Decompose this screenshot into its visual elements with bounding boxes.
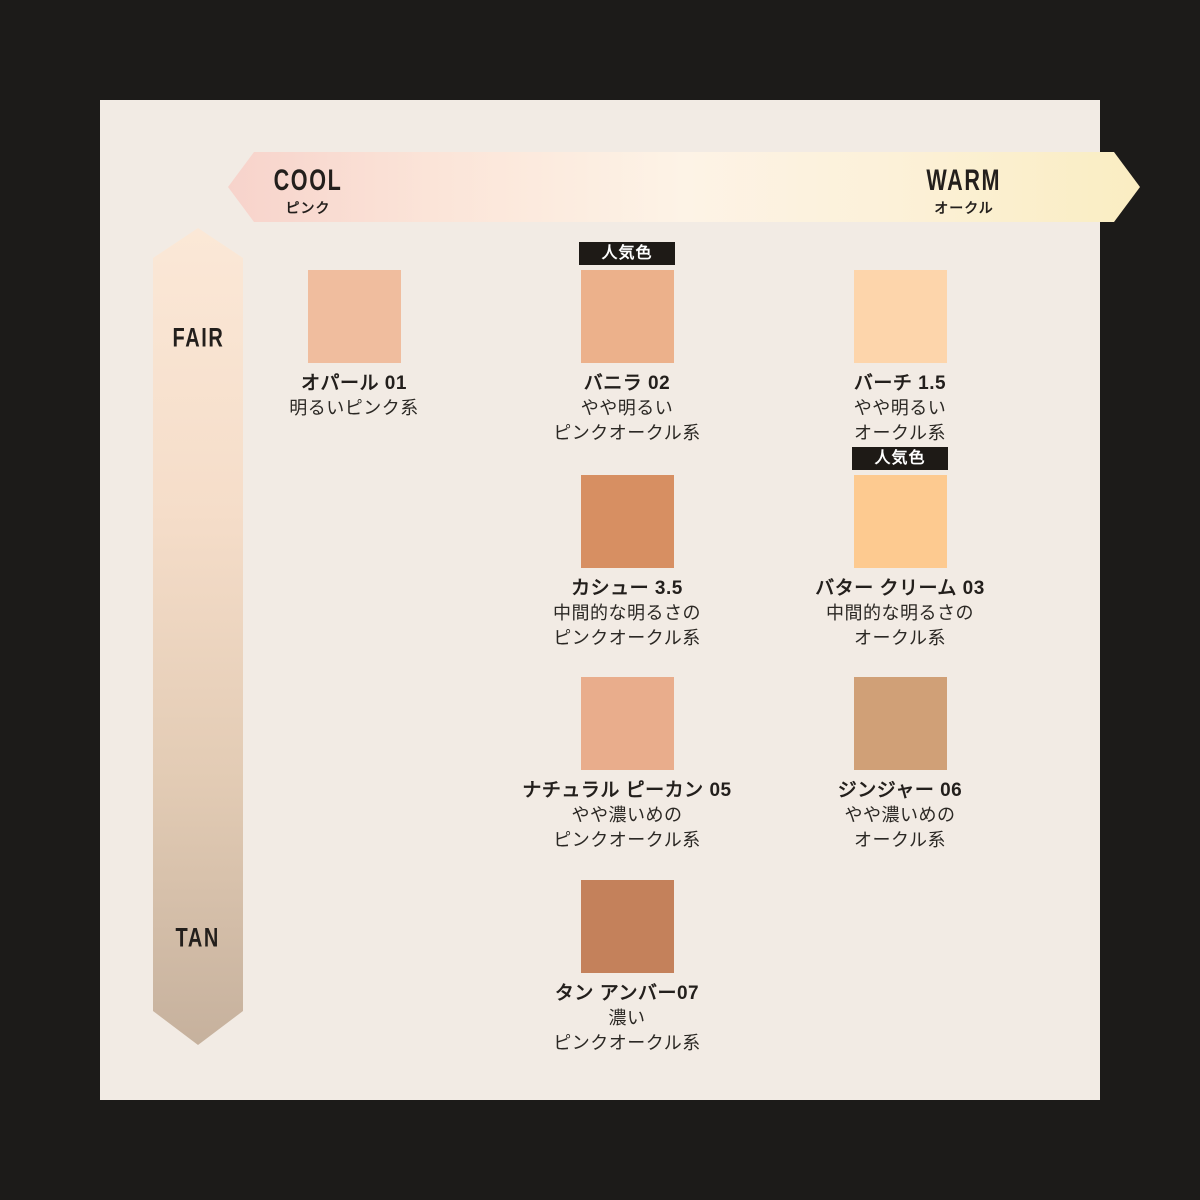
tan-label-text: TAN xyxy=(176,925,220,952)
shade-swatch xyxy=(581,475,674,568)
shade-description-line: やや濃いめの xyxy=(497,803,757,828)
shade-name: オパール 01 xyxy=(224,372,484,396)
shade-name: バター クリーム 03 xyxy=(770,577,1030,601)
shade-description-line: オークル系 xyxy=(770,626,1030,651)
shade-cell: 人気色バニラ 02やや明るいピンクオークル系 xyxy=(497,270,757,446)
shade-swatch xyxy=(581,677,674,770)
shade-description-line: やや明るい xyxy=(497,396,757,421)
shade-description-line: やや濃いめの xyxy=(770,803,1030,828)
shade-cell: 人気色バター クリーム 03中間的な明るさのオークル系 xyxy=(770,475,1030,651)
tan-axis-label: TAN xyxy=(153,926,243,951)
shade-description: やや濃いめのピンクオークル系 xyxy=(497,803,757,853)
cool-label-text: COOL xyxy=(274,166,343,195)
shade-description: 濃いピンクオークル系 xyxy=(497,1006,757,1056)
cool-axis-label: COOL ピンク xyxy=(228,166,388,218)
shade-name: バーチ 1.5 xyxy=(770,372,1030,396)
popular-badge: 人気色 xyxy=(579,242,675,265)
fair-label-text: FAIR xyxy=(172,325,224,352)
shade-cell: オパール 01明るいピンク系 xyxy=(224,270,484,421)
warm-sublabel-text: オークル xyxy=(884,198,1044,218)
shade-description: 中間的な明るさのピンクオークル系 xyxy=(497,601,757,651)
shade-cell: ジンジャー 06やや濃いめのオークル系 xyxy=(770,677,1030,853)
cool-sublabel-text: ピンク xyxy=(228,198,388,218)
shade-cell: バーチ 1.5やや明るいオークル系 xyxy=(770,270,1030,446)
shade-description-line: オークル系 xyxy=(770,828,1030,853)
shade-swatch xyxy=(854,677,947,770)
shade-name: タン アンバー07 xyxy=(497,982,757,1006)
shade-name: ジンジャー 06 xyxy=(770,779,1030,803)
shade-description: 明るいピンク系 xyxy=(224,396,484,421)
shade-swatch xyxy=(581,270,674,363)
warm-axis-label: WARM オークル xyxy=(884,166,1044,218)
shade-description: やや明るいピンクオークル系 xyxy=(497,396,757,446)
shade-description-line: 中間的な明るさの xyxy=(770,601,1030,626)
shade-swatch xyxy=(854,270,947,363)
popular-badge: 人気色 xyxy=(852,447,948,470)
shade-name: ナチュラル ピーカン 05 xyxy=(497,779,757,803)
shade-cell: ナチュラル ピーカン 05やや濃いめのピンクオークル系 xyxy=(497,677,757,853)
shade-swatch xyxy=(581,880,674,973)
shade-description: やや明るいオークル系 xyxy=(770,396,1030,446)
shade-description: 中間的な明るさのオークル系 xyxy=(770,601,1030,651)
shade-cell: タン アンバー07濃いピンクオークル系 xyxy=(497,880,757,1056)
shade-name: カシュー 3.5 xyxy=(497,577,757,601)
shade-name: バニラ 02 xyxy=(497,372,757,396)
warm-label-text: WARM xyxy=(927,166,1002,195)
shade-description-line: やや明るい xyxy=(770,396,1030,421)
shade-description-line: ピンクオークル系 xyxy=(497,1031,757,1056)
shade-description-line: 濃い xyxy=(497,1006,757,1031)
shade-description-line: 明るいピンク系 xyxy=(224,396,484,421)
shade-description-line: ピンクオークル系 xyxy=(497,828,757,853)
shade-description: やや濃いめのオークル系 xyxy=(770,803,1030,853)
shade-swatch xyxy=(308,270,401,363)
chart-panel: COOL ピンク WARM オークル FAIR TAN オパール 01明るいピン… xyxy=(100,100,1100,1100)
shade-cell: カシュー 3.5中間的な明るさのピンクオークル系 xyxy=(497,475,757,651)
shade-description-line: オークル系 xyxy=(770,421,1030,446)
shade-description-line: ピンクオークル系 xyxy=(497,421,757,446)
shade-chart-image: COOL ピンク WARM オークル FAIR TAN オパール 01明るいピン… xyxy=(0,0,1200,1200)
shade-description-line: 中間的な明るさの xyxy=(497,601,757,626)
shade-swatch xyxy=(854,475,947,568)
shade-description-line: ピンクオークル系 xyxy=(497,626,757,651)
